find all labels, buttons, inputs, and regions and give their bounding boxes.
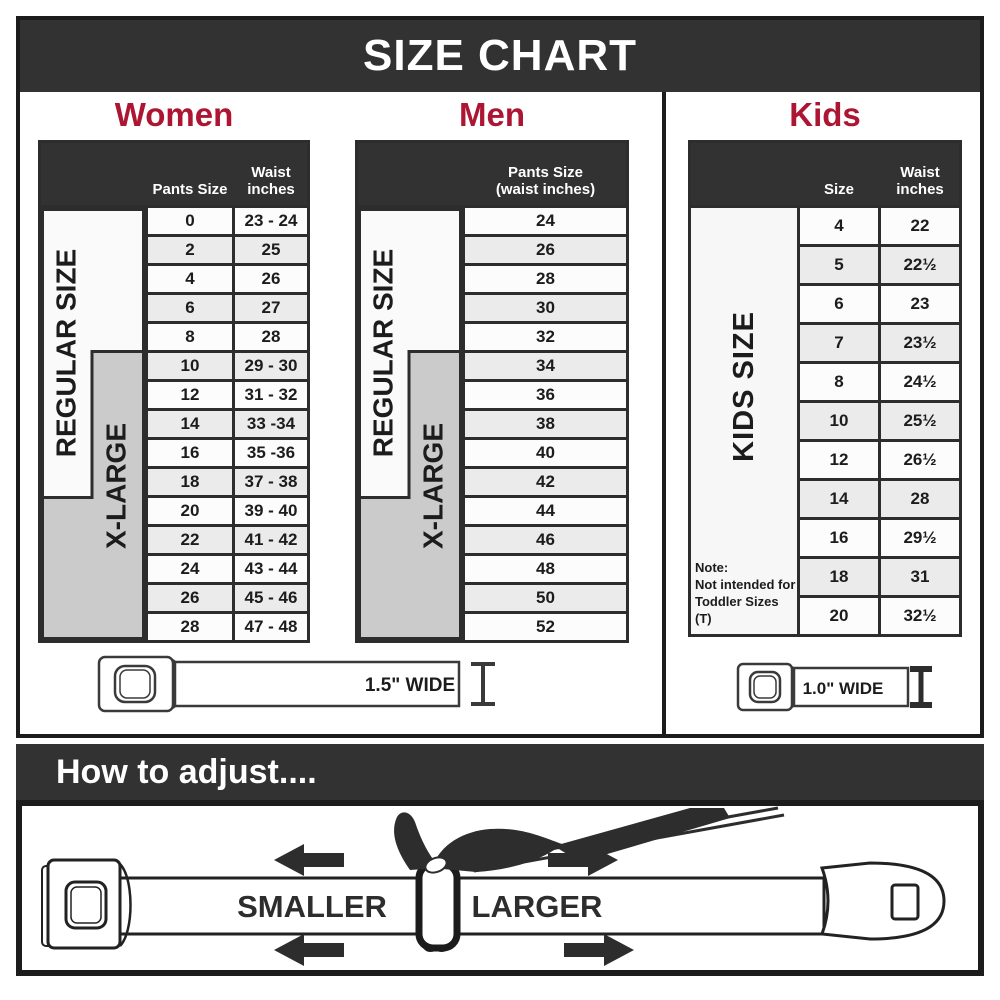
- table-cell: 29½: [881, 520, 959, 556]
- section-divider: [662, 92, 666, 734]
- table-cell: 23: [881, 286, 959, 322]
- table-cell: 28: [881, 481, 959, 517]
- table-cell: 4: [148, 266, 232, 292]
- table-cell: 14: [800, 481, 878, 517]
- women-section-heading: Women: [38, 94, 310, 136]
- table-cell: 0: [148, 208, 232, 234]
- table-cell: 12: [800, 442, 878, 478]
- xlarge-label: X-LARGE: [417, 423, 448, 549]
- kids-size-table: Size Waist inches KIDS SIZE Note: Not in…: [688, 140, 962, 637]
- table-cell: 28: [235, 324, 307, 350]
- table-cell: 45 - 46: [235, 585, 307, 611]
- table-cell: 31: [881, 559, 959, 595]
- table-cell: 16: [800, 520, 878, 556]
- table-cell: 34: [465, 353, 626, 379]
- regular-size-label: REGULAR SIZE: [367, 249, 398, 457]
- table-cell: 14: [148, 411, 232, 437]
- table-cell: 36: [465, 382, 626, 408]
- table-cell: 23½: [881, 325, 959, 361]
- women-waist-column-header: Waist inches: [235, 164, 307, 199]
- men-size-table: Pants Size (waist inches) REGULAR SIZE X…: [355, 140, 629, 643]
- table-cell: 8: [148, 324, 232, 350]
- table-cell: 10: [148, 353, 232, 379]
- table-cell: 50: [465, 585, 626, 611]
- table-cell: 31 - 32: [235, 382, 307, 408]
- kids-table-header: Size Waist inches: [691, 143, 959, 205]
- how-to-adjust-panel: SMALLER LARGER: [16, 800, 984, 976]
- table-cell: 38: [465, 411, 626, 437]
- table-cell: 43 - 44: [235, 556, 307, 582]
- men-table-header: Pants Size (waist inches): [358, 143, 626, 205]
- table-cell: 20: [148, 498, 232, 524]
- table-cell: 28: [465, 266, 626, 292]
- men-pants-size-column-header: Pants Size (waist inches): [465, 164, 626, 199]
- width-marker-icon: [471, 664, 495, 704]
- men-section-heading: Men: [355, 94, 629, 136]
- table-cell: 24: [148, 556, 232, 582]
- table-cell: 4: [800, 208, 878, 244]
- kids-waist-column-header: Waist inches: [881, 164, 959, 199]
- table-cell: 26: [235, 266, 307, 292]
- arrow-right-icon: [564, 934, 634, 966]
- table-cell: 25: [235, 237, 307, 263]
- table-cell: 6: [800, 286, 878, 322]
- belt-strap: [108, 878, 824, 934]
- how-to-adjust-band: How to adjust....: [16, 744, 984, 800]
- size-chart-page: SIZE CHART Women Men Kids Pants Size Wai…: [0, 0, 1000, 1000]
- table-cell: 27: [235, 295, 307, 321]
- larger-label: LARGER: [472, 889, 603, 924]
- table-cell: 26: [148, 585, 232, 611]
- table-cell: 12: [148, 382, 232, 408]
- table-cell: 2: [148, 237, 232, 263]
- women-size-category-labels: REGULAR SIZE X-LARGE: [41, 208, 145, 640]
- table-cell: 22: [881, 208, 959, 244]
- table-cell: 29 - 30: [235, 353, 307, 379]
- table-cell: 18: [800, 559, 878, 595]
- women-pants-size-column-header: Pants Size: [148, 181, 232, 198]
- arrow-left-icon: [274, 934, 344, 966]
- table-cell: 39 - 40: [235, 498, 307, 524]
- kids-size-category-label: KIDS SIZE Note: Not intended for Toddler…: [691, 208, 797, 634]
- table-cell: 28: [148, 614, 232, 640]
- table-cell: 8: [800, 364, 878, 400]
- adjustment-illustration: SMALLER LARGER: [22, 806, 978, 970]
- table-cell: 37 - 38: [235, 469, 307, 495]
- toddler-note: Note: Not intended for Toddler Sizes (T): [695, 560, 797, 628]
- adult-belt-width-label: 1.5" WIDE: [365, 675, 455, 696]
- arrow-left-icon: [274, 844, 344, 876]
- table-cell: 41 - 42: [235, 527, 307, 553]
- table-cell: 18: [148, 469, 232, 495]
- table-cell: 30: [465, 295, 626, 321]
- table-cell: 16: [148, 440, 232, 466]
- page-title-bar: SIZE CHART: [20, 20, 980, 92]
- table-cell: 32: [465, 324, 626, 350]
- table-cell: 46: [465, 527, 626, 553]
- belt-adjuster-icon: [419, 864, 457, 948]
- smaller-label: SMALLER: [237, 889, 387, 924]
- table-cell: 44: [465, 498, 626, 524]
- table-cell: 47 - 48: [235, 614, 307, 640]
- table-cell: 22½: [881, 247, 959, 283]
- table-cell: 33 -34: [235, 411, 307, 437]
- table-cell: 24: [465, 208, 626, 234]
- table-cell: 20: [800, 598, 878, 634]
- table-cell: 35 -36: [235, 440, 307, 466]
- kids-size-column-header: Size: [800, 181, 878, 198]
- width-marker-icon: [910, 668, 932, 706]
- adult-belt-illustration: 1.5" WIDE: [95, 650, 505, 718]
- buckle-icon: [42, 860, 131, 948]
- women-size-table: Pants Size Waist inches REGULAR SIZE X-L…: [38, 140, 310, 643]
- table-cell: 23 - 24: [235, 208, 307, 234]
- kids-section-heading: Kids: [688, 94, 962, 136]
- kids-size-label: KIDS SIZE: [728, 311, 761, 462]
- table-cell: 42: [465, 469, 626, 495]
- table-cell: 6: [148, 295, 232, 321]
- latch-plate-icon: [822, 863, 944, 939]
- men-size-category-labels: REGULAR SIZE X-LARGE: [358, 208, 462, 640]
- page-title: SIZE CHART: [363, 31, 637, 81]
- table-cell: 10: [800, 403, 878, 439]
- table-cell: 25½: [881, 403, 959, 439]
- table-cell: 24½: [881, 364, 959, 400]
- kids-belt-illustration: 1.0" WIDE: [735, 658, 935, 716]
- regular-size-label: REGULAR SIZE: [50, 249, 81, 457]
- table-cell: 7: [800, 325, 878, 361]
- table-cell: 52: [465, 614, 626, 640]
- how-to-adjust-heading: How to adjust....: [56, 753, 317, 792]
- table-cell: 40: [465, 440, 626, 466]
- table-cell: 5: [800, 247, 878, 283]
- table-cell: 26: [465, 237, 626, 263]
- xlarge-label: X-LARGE: [100, 423, 131, 549]
- table-cell: 48: [465, 556, 626, 582]
- table-cell: 22: [148, 527, 232, 553]
- women-table-header: Pants Size Waist inches: [41, 143, 307, 205]
- table-cell: 32½: [881, 598, 959, 634]
- kids-belt-width-label: 1.0" WIDE: [803, 679, 884, 698]
- table-cell: 26½: [881, 442, 959, 478]
